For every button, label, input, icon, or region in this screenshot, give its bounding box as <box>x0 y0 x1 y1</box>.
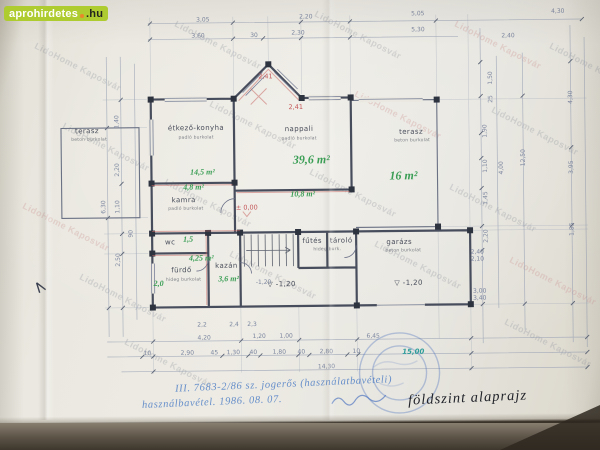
plan-label: 1,00 <box>279 333 292 340</box>
plan-label: beton burkolat <box>385 248 421 253</box>
plan-label: 12,50 <box>520 149 527 166</box>
plan-label: 14,30 <box>318 363 335 370</box>
area-etkezo-konyha: 14,5 m² <box>190 167 215 176</box>
plan-label: 4,30 <box>567 90 574 103</box>
plan-label: 3,05 <box>196 16 209 23</box>
room-label-nappali: nappali <box>285 125 314 133</box>
plan-label: 10 <box>143 350 151 357</box>
plan-label: 1,20 <box>252 333 265 340</box>
plan-label: 5,05 <box>411 10 424 17</box>
plan-label: 1,80 <box>273 349 286 356</box>
room-label-terasz-right: terasz <box>399 128 423 136</box>
plan-label: 2,0 <box>154 279 164 288</box>
plan-label: 40 <box>249 349 257 356</box>
plan-label: 4,00 <box>498 161 505 174</box>
plan-label: 1,10 <box>482 159 489 172</box>
room-label-furdo: fürdő <box>171 266 191 274</box>
plan-label: 6,45 <box>366 333 379 340</box>
plan-label: 30 <box>250 32 258 39</box>
area-nappali: 39,6 m² <box>293 152 330 167</box>
listing-photo-floor-plan: LidoHome KaposvárLidoHome KaposvárLidoHo… <box>0 0 600 450</box>
area-furdo: 4,25 m² <box>189 253 214 262</box>
plan-label: 2,20 <box>299 13 312 20</box>
plan-label: 2,10 <box>471 256 484 263</box>
plan-label: 90 <box>128 230 135 238</box>
plan-label: -1,20 <box>256 279 272 286</box>
area-kazan: 3,6 m² <box>218 274 239 283</box>
plan-label: 2,30 <box>291 29 304 36</box>
plan-label: 2,90 <box>181 350 194 357</box>
plan-label: 15,00 <box>402 348 424 356</box>
plan-label: 2,20 <box>483 229 490 242</box>
plan-label: 4,20 <box>197 334 210 341</box>
logo-brand-text: aprohirdetes <box>9 8 78 20</box>
plan-label: 6,30 <box>100 200 107 213</box>
area-kamra: 4,8 m² <box>183 183 204 192</box>
plan-label: 2,3 <box>247 321 257 328</box>
plan-label: 25 <box>487 95 494 103</box>
logo-dot-icon <box>80 14 84 18</box>
plan-label: 4,30 <box>551 8 564 15</box>
plan-label: padló burkolat <box>168 207 203 212</box>
area-kozlekedo: 10,8 m² <box>290 189 315 198</box>
plan-label: 1,85 <box>568 222 575 235</box>
plan-label: 2,20 <box>114 163 121 176</box>
plan-label: 2,41 <box>258 72 273 80</box>
room-label-tarolo: tároló <box>330 236 353 244</box>
plan-label: 40 <box>297 348 305 355</box>
plan-label: 10 <box>352 348 360 355</box>
plan-label: 1,45 <box>482 191 489 204</box>
plan-label: hideg burkolat <box>166 278 201 283</box>
room-label-kazan: kazán <box>215 262 238 270</box>
plan-label: 2,2 <box>197 321 207 328</box>
area-terasz: 16 m² <box>389 168 417 183</box>
plan-label: padló burkolat <box>281 136 316 141</box>
plan-label: 1,90 <box>481 124 488 137</box>
plan-label: 1,40 <box>113 115 120 128</box>
aprohirdetes-logo: aprohirdetes .hu <box>4 6 108 21</box>
plan-label: 2,80 <box>320 348 333 355</box>
plan-label: 2,40 <box>501 32 514 39</box>
room-label-wc: wc <box>165 238 175 246</box>
plan-label: 1,10 <box>114 200 121 213</box>
logo-tld-text: .hu <box>86 8 103 20</box>
level-mark-garazs: ▽ -1,20 <box>394 279 423 287</box>
plan-label: 2,41 <box>288 103 303 111</box>
plan-label: 3,40 <box>473 295 486 302</box>
plan-label: 2,50 <box>115 253 122 266</box>
plan-label: 2,4 <box>229 321 239 328</box>
plan-label: 3,60 <box>191 32 204 39</box>
room-label-kamra: kamra <box>172 196 196 204</box>
plan-label: 1,50 <box>487 71 494 84</box>
room-label-terasz-left: terasz <box>75 127 99 135</box>
room-label-futes: fűtés <box>302 237 322 245</box>
room-label-etkezo-konyha: étkező-konyha <box>168 124 224 133</box>
plan-label: hideg burk. <box>313 247 341 252</box>
plan-label: padló burkolat <box>178 135 213 140</box>
plan-label: 1,30 <box>227 349 240 356</box>
plan-label: beton burkolat <box>71 138 107 143</box>
plan-label: 5,30 <box>411 26 424 33</box>
area-wc: 1,5 <box>183 235 193 244</box>
plan-label: beton burkolat <box>394 138 430 143</box>
plan-label: 3,95 <box>568 160 575 173</box>
room-label-garazs: garázs <box>386 238 412 246</box>
level-mark-zero: ± 0,00 <box>236 203 258 211</box>
plan-label: 45 <box>210 349 218 356</box>
